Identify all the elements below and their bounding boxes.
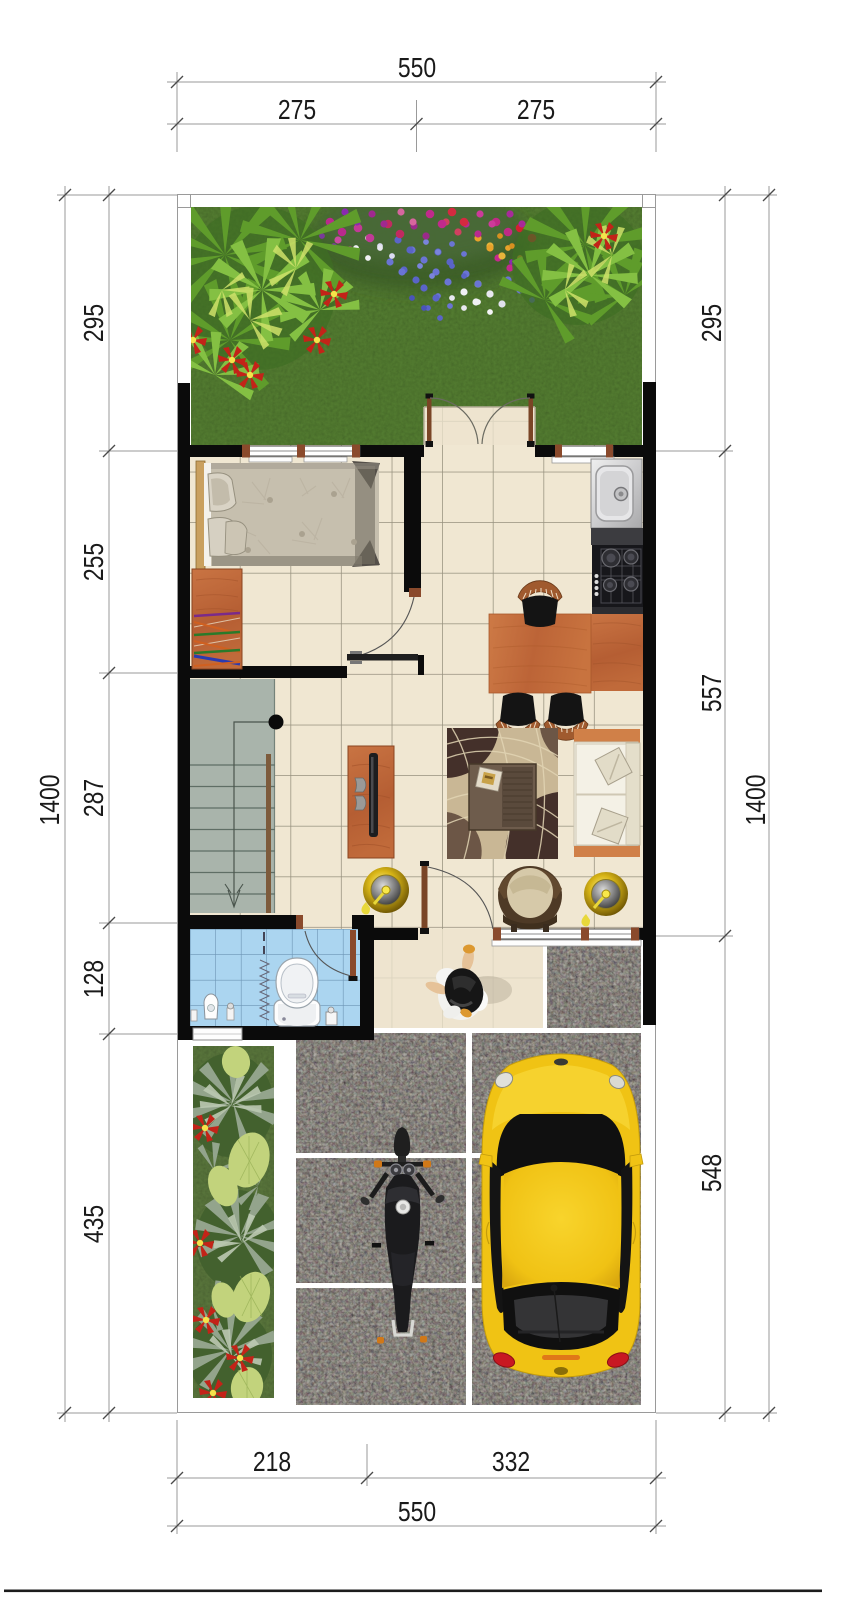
- svg-text:275: 275: [517, 95, 555, 126]
- svg-text:548: 548: [697, 1154, 728, 1192]
- svg-text:435: 435: [79, 1205, 110, 1243]
- svg-text:550: 550: [398, 53, 436, 84]
- svg-text:332: 332: [492, 1447, 530, 1478]
- svg-text:550: 550: [398, 1497, 436, 1528]
- svg-text:275: 275: [278, 95, 316, 126]
- svg-text:557: 557: [697, 674, 728, 712]
- svg-text:1400: 1400: [35, 774, 66, 825]
- svg-text:295: 295: [697, 304, 728, 342]
- svg-text:128: 128: [79, 960, 110, 998]
- svg-text:255: 255: [79, 543, 110, 581]
- svg-text:1400: 1400: [741, 774, 772, 825]
- svg-text:218: 218: [253, 1447, 291, 1478]
- svg-text:295: 295: [79, 304, 110, 342]
- svg-text:287: 287: [79, 779, 110, 817]
